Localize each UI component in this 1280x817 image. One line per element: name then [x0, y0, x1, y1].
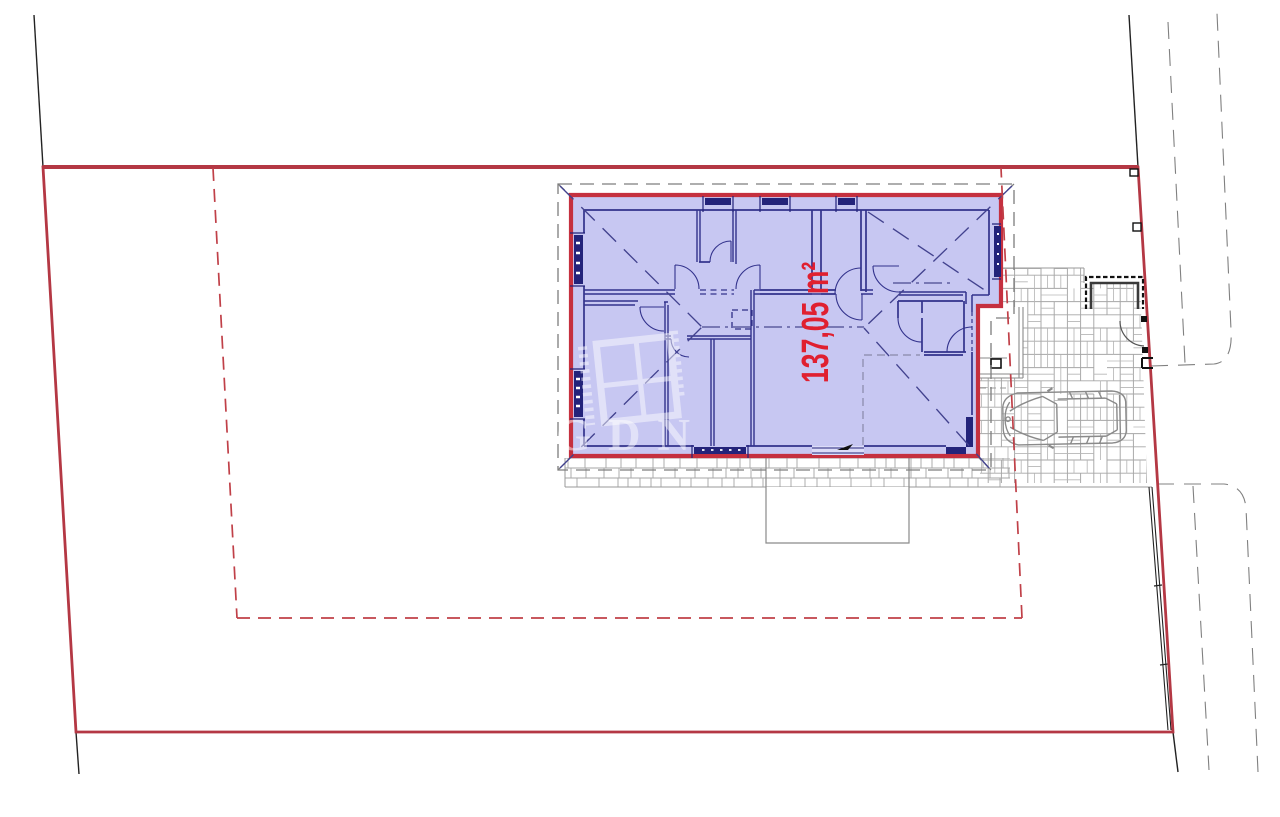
svg-text:137,05 m²: 137,05 m² [793, 262, 836, 383]
svg-text:GDN: GDN [556, 410, 707, 460]
